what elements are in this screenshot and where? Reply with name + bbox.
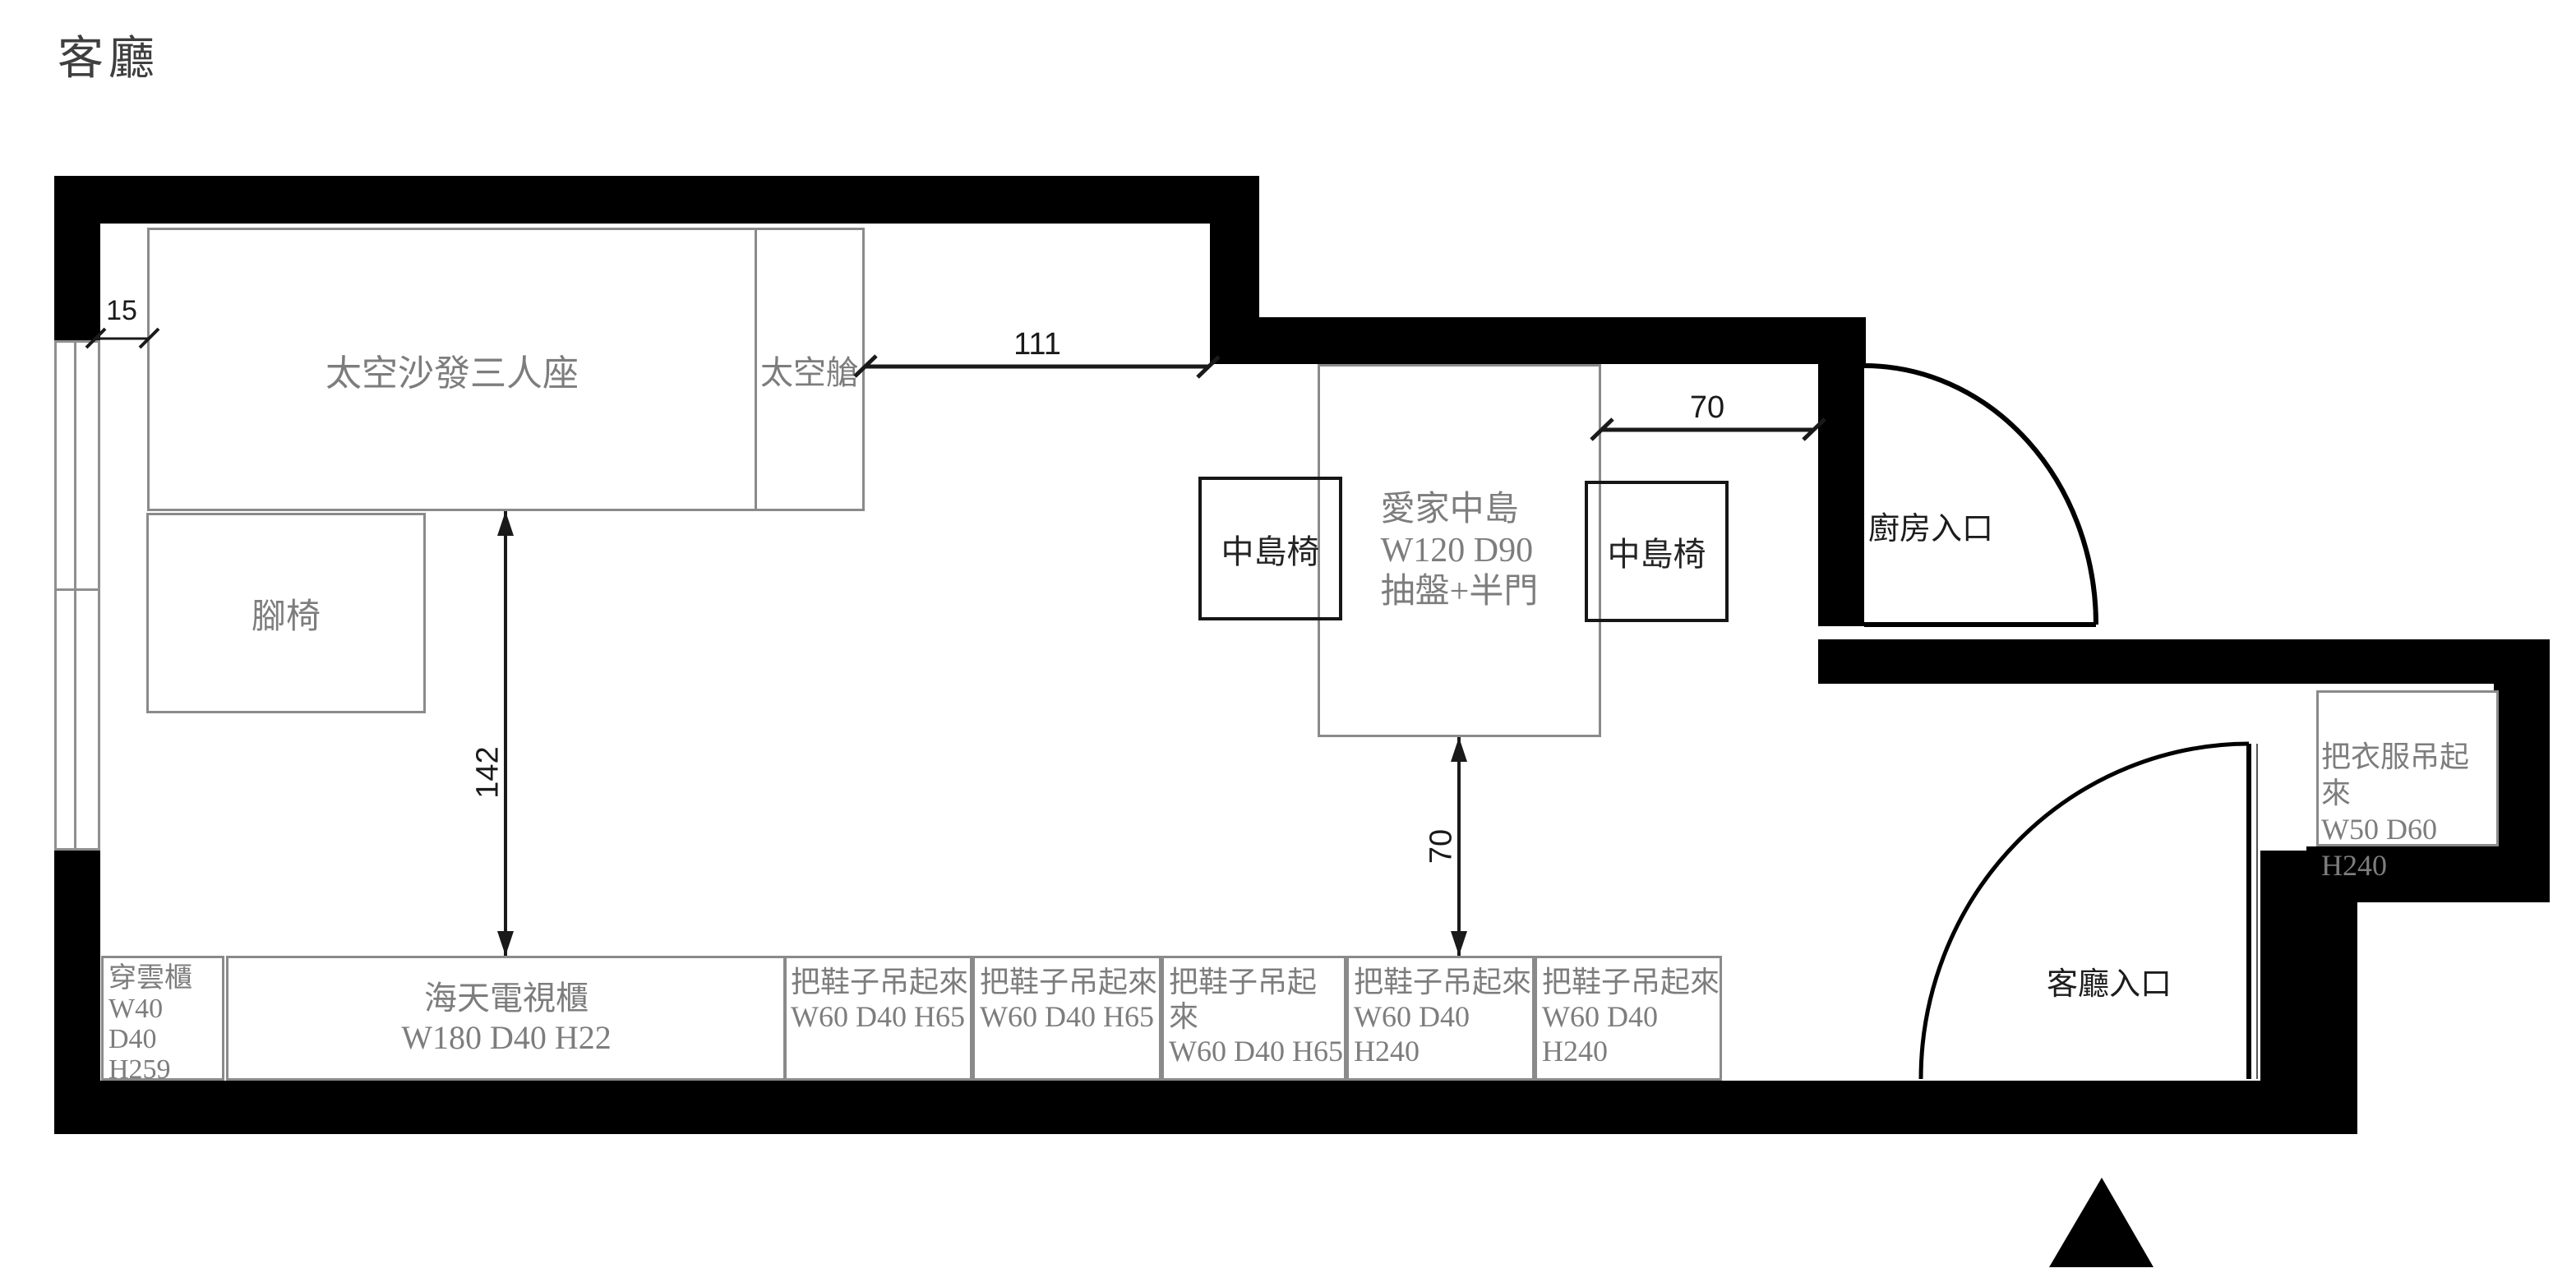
kitchen-door-arc [1864,366,2096,625]
dim-111-label: 111 [1013,327,1061,362]
dim-70v-label: 70 [1424,829,1460,864]
dim-142-arrow-bottom [497,931,514,956]
living-entrance-label: 客廳入口 [2047,958,2172,1003]
dim-70v-arrow-bottom [1451,931,1467,956]
dim-142-label: 142 [471,746,506,798]
dim-70h-label: 70 [1690,390,1724,426]
dim-142-arrow-top [497,511,514,536]
plan-annotations [0,0,2576,1282]
floor-plan: 客廳 太空沙發三人座 太空艙 腳椅 愛家中島 W120 D90 抽盤+半門 [0,0,2576,1282]
dim-15-label: 15 [106,295,137,327]
kitchen-entrance-label: 廚房入口 [1868,503,1993,548]
dim-70v-arrow-top [1451,737,1467,762]
entrance-marker-triangle [2049,1178,2154,1267]
living-door-arc [1921,744,2249,1079]
